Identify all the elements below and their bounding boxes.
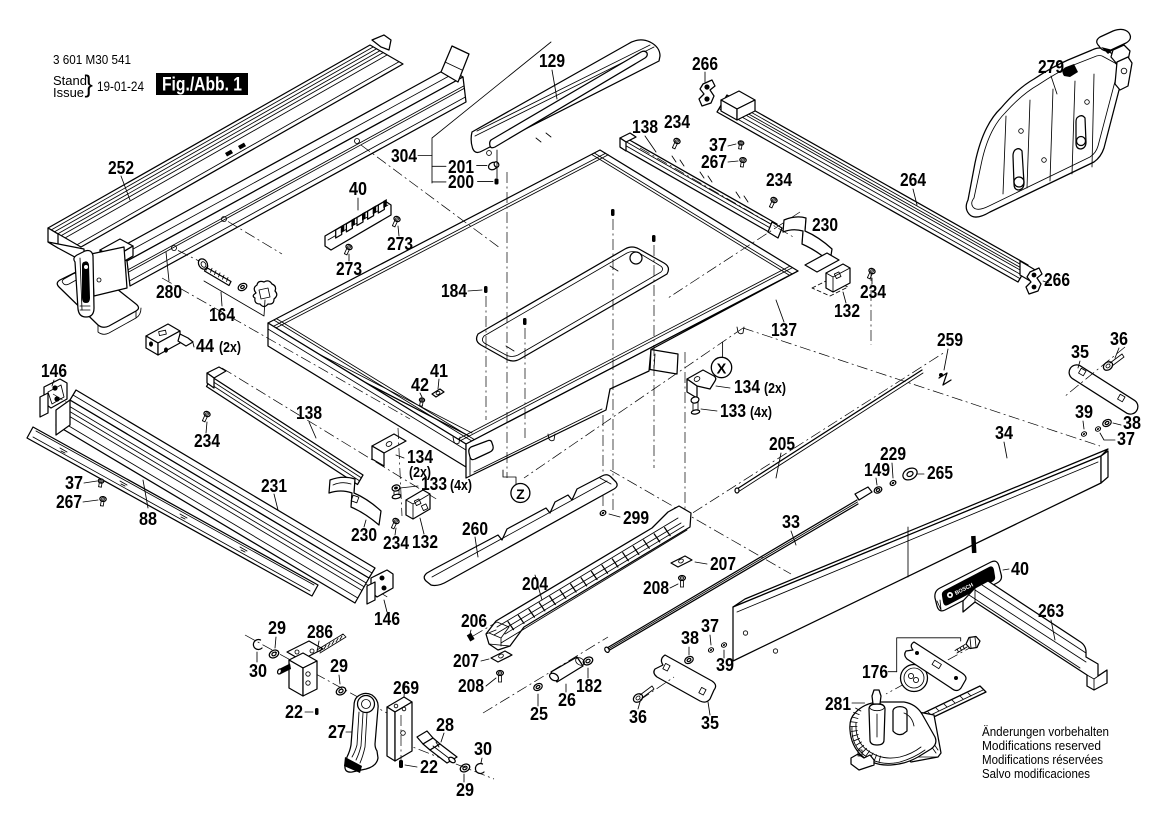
svg-text:30: 30 bbox=[249, 660, 267, 681]
svg-text:164: 164 bbox=[209, 304, 236, 325]
svg-text:28: 28 bbox=[436, 714, 454, 735]
svg-text:29: 29 bbox=[456, 779, 474, 800]
svg-text:265: 265 bbox=[927, 462, 953, 483]
svg-text:40: 40 bbox=[1011, 558, 1029, 579]
svg-text:39: 39 bbox=[716, 654, 734, 675]
svg-text:231: 231 bbox=[261, 475, 287, 496]
svg-text:132: 132 bbox=[834, 300, 860, 321]
svg-text:19-01-24: 19-01-24 bbox=[97, 79, 144, 94]
svg-text:234: 234 bbox=[664, 111, 691, 132]
svg-text:267: 267 bbox=[701, 151, 727, 172]
svg-text:29: 29 bbox=[330, 655, 348, 676]
svg-text:207: 207 bbox=[710, 553, 736, 574]
svg-text:36: 36 bbox=[1110, 328, 1128, 349]
svg-text:Z: Z bbox=[516, 486, 525, 502]
svg-text:27: 27 bbox=[328, 721, 346, 742]
svg-text:184: 184 bbox=[441, 280, 468, 301]
svg-text:234: 234 bbox=[194, 430, 221, 451]
svg-text:132: 132 bbox=[412, 531, 438, 552]
svg-text:26: 26 bbox=[558, 689, 576, 710]
svg-text:Fig./Abb. 1: Fig./Abb. 1 bbox=[162, 75, 242, 96]
svg-text:280: 280 bbox=[156, 281, 182, 302]
svg-text:34: 34 bbox=[995, 422, 1014, 443]
svg-text:129: 129 bbox=[539, 50, 565, 71]
svg-text:263: 263 bbox=[1038, 600, 1064, 621]
svg-text:37: 37 bbox=[1117, 428, 1135, 449]
svg-text:205: 205 bbox=[769, 433, 795, 454]
svg-text:134: 134 bbox=[734, 376, 761, 397]
svg-text:234: 234 bbox=[860, 281, 887, 302]
svg-text:259: 259 bbox=[937, 329, 963, 350]
svg-text:208: 208 bbox=[643, 577, 669, 598]
svg-text:234: 234 bbox=[766, 169, 793, 190]
svg-text:Modifications reserved: Modifications reserved bbox=[982, 738, 1101, 753]
svg-text:138: 138 bbox=[296, 402, 322, 423]
svg-text:29: 29 bbox=[268, 617, 286, 638]
svg-text:3 601 M30 541: 3 601 M30 541 bbox=[53, 53, 131, 67]
svg-text:234: 234 bbox=[383, 532, 410, 553]
svg-text:39: 39 bbox=[1075, 401, 1093, 422]
svg-text:88: 88 bbox=[139, 508, 157, 529]
svg-text:33: 33 bbox=[782, 511, 800, 532]
svg-text:37: 37 bbox=[65, 472, 83, 493]
svg-text:Modifications réservées: Modifications réservées bbox=[982, 752, 1103, 767]
svg-text:(2x): (2x) bbox=[764, 380, 786, 397]
svg-text:267: 267 bbox=[56, 491, 82, 512]
svg-text:304: 304 bbox=[391, 145, 418, 166]
svg-text:286: 286 bbox=[307, 621, 333, 642]
svg-text:229: 229 bbox=[880, 443, 906, 464]
svg-text:260: 260 bbox=[462, 518, 488, 539]
svg-text:281: 281 bbox=[825, 693, 851, 714]
svg-text:Salvo modificaciones: Salvo modificaciones bbox=[982, 766, 1090, 781]
svg-text:44: 44 bbox=[196, 335, 215, 356]
svg-text:182: 182 bbox=[576, 675, 602, 696]
svg-text:X: X bbox=[717, 362, 727, 378]
svg-text:25: 25 bbox=[530, 703, 548, 724]
svg-text:269: 269 bbox=[393, 677, 419, 698]
svg-text:279: 279 bbox=[1038, 56, 1064, 77]
svg-text:40: 40 bbox=[349, 178, 367, 199]
svg-text:}: } bbox=[85, 71, 93, 99]
svg-text:35: 35 bbox=[1071, 341, 1089, 362]
svg-text:266: 266 bbox=[1044, 269, 1070, 290]
svg-text:252: 252 bbox=[108, 157, 134, 178]
svg-text:30: 30 bbox=[474, 738, 492, 759]
svg-text:(2x): (2x) bbox=[219, 339, 241, 356]
svg-text:Issue: Issue bbox=[53, 85, 84, 100]
svg-text:138: 138 bbox=[632, 116, 658, 137]
svg-text:38: 38 bbox=[681, 627, 699, 648]
svg-text:266: 266 bbox=[692, 53, 718, 74]
svg-text:133: 133 bbox=[720, 400, 746, 421]
svg-text:230: 230 bbox=[812, 214, 838, 235]
svg-text:207: 207 bbox=[453, 650, 479, 671]
svg-text:299: 299 bbox=[623, 507, 649, 528]
svg-text:176: 176 bbox=[862, 661, 888, 682]
svg-text:264: 264 bbox=[900, 169, 927, 190]
svg-text:22: 22 bbox=[420, 756, 438, 777]
svg-text:22: 22 bbox=[285, 701, 303, 722]
svg-text:(4x): (4x) bbox=[450, 477, 472, 494]
svg-text:208: 208 bbox=[458, 675, 484, 696]
svg-text:42: 42 bbox=[411, 374, 429, 395]
svg-text:206: 206 bbox=[461, 610, 487, 631]
svg-text:200: 200 bbox=[448, 171, 474, 192]
svg-text:37: 37 bbox=[701, 615, 719, 636]
svg-text:41: 41 bbox=[430, 360, 448, 381]
svg-text:146: 146 bbox=[41, 360, 67, 381]
svg-text:(4x): (4x) bbox=[750, 404, 772, 421]
svg-text:Änderungen vorbehalten: Änderungen vorbehalten bbox=[982, 724, 1109, 739]
